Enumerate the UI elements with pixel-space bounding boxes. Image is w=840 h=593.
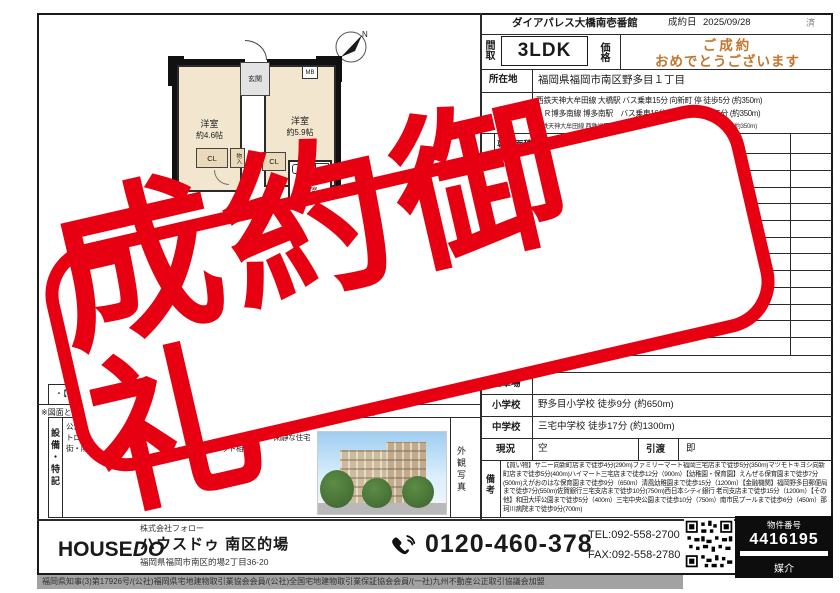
exterior-photo-label: 外観写真 bbox=[456, 446, 465, 494]
grid-line bbox=[790, 133, 791, 355]
property-number-box: 物件番号 4416195 媒介 bbox=[735, 516, 833, 578]
status-seal: 済 bbox=[806, 18, 815, 28]
remarks-label: 備考 bbox=[485, 474, 494, 496]
handover-label: 引渡 bbox=[646, 445, 665, 456]
freedial-number: 0120-460-378 bbox=[425, 530, 593, 559]
grid-line bbox=[500, 460, 501, 517]
qr-code bbox=[684, 519, 734, 569]
shop-address: 福岡県福岡市南区的場2丁目36-20 bbox=[140, 558, 268, 568]
flyer-sheet: ダイアパレス大橋南壱番館 成約日 2025/09/28 済 間取 3LDK 価格… bbox=[0, 0, 840, 593]
deal-type: 媒介 bbox=[774, 560, 794, 575]
contract-date-label: 成約日 bbox=[668, 18, 697, 29]
property-number-label: 物件番号 bbox=[767, 519, 801, 531]
grid-line bbox=[638, 438, 639, 460]
room-size: 約4.6帖 bbox=[196, 130, 223, 141]
grid-line bbox=[48, 417, 49, 517]
handover-value: 即 bbox=[686, 444, 696, 455]
room-label: 洋室 bbox=[291, 114, 309, 127]
grid-line bbox=[480, 460, 833, 461]
tree bbox=[402, 476, 434, 508]
layout-value: 3LDK bbox=[501, 36, 588, 66]
shop-name: ハウスドゥ 南区的場 bbox=[140, 536, 289, 553]
grid-line bbox=[678, 438, 679, 460]
current-status-label: 現況 bbox=[496, 445, 515, 456]
grid-line bbox=[620, 34, 621, 69]
phone-icon bbox=[388, 530, 418, 560]
current-status-value: 空 bbox=[538, 444, 548, 455]
property-number-value: 4416195 bbox=[749, 531, 818, 549]
grid-line bbox=[62, 417, 63, 517]
room-label: 洋室 bbox=[200, 117, 218, 130]
contract-date: 2025/09/28 bbox=[703, 18, 751, 29]
tel-number: TEL:092-558-2700 bbox=[588, 529, 680, 542]
meter-box: MB bbox=[302, 66, 318, 79]
remarks-text: 【買い物】サニー向新町店まで徒歩4分(290m)ファミリーマート福岡三宅店まで徒… bbox=[503, 462, 830, 516]
building-name: ダイアパレス大橋南壱番館 bbox=[512, 17, 638, 29]
divider-bar bbox=[740, 551, 828, 556]
equipment-label: 設備・特記 bbox=[50, 428, 59, 488]
price-label: 価格 bbox=[598, 42, 608, 62]
logo-house: HOUSE bbox=[58, 538, 133, 561]
license-strip: 福岡県知事(3)第17926号/(公社)福岡県宅地建物取引業協会会員/(公社)全… bbox=[37, 575, 683, 589]
fax-number: FAX:092-558-2780 bbox=[588, 549, 680, 562]
tree bbox=[362, 478, 392, 508]
grid-line bbox=[48, 384, 49, 404]
genkan-area: 玄関 bbox=[240, 62, 270, 96]
layout-label: 間取 bbox=[483, 40, 493, 60]
svg-text:N: N bbox=[362, 30, 368, 39]
